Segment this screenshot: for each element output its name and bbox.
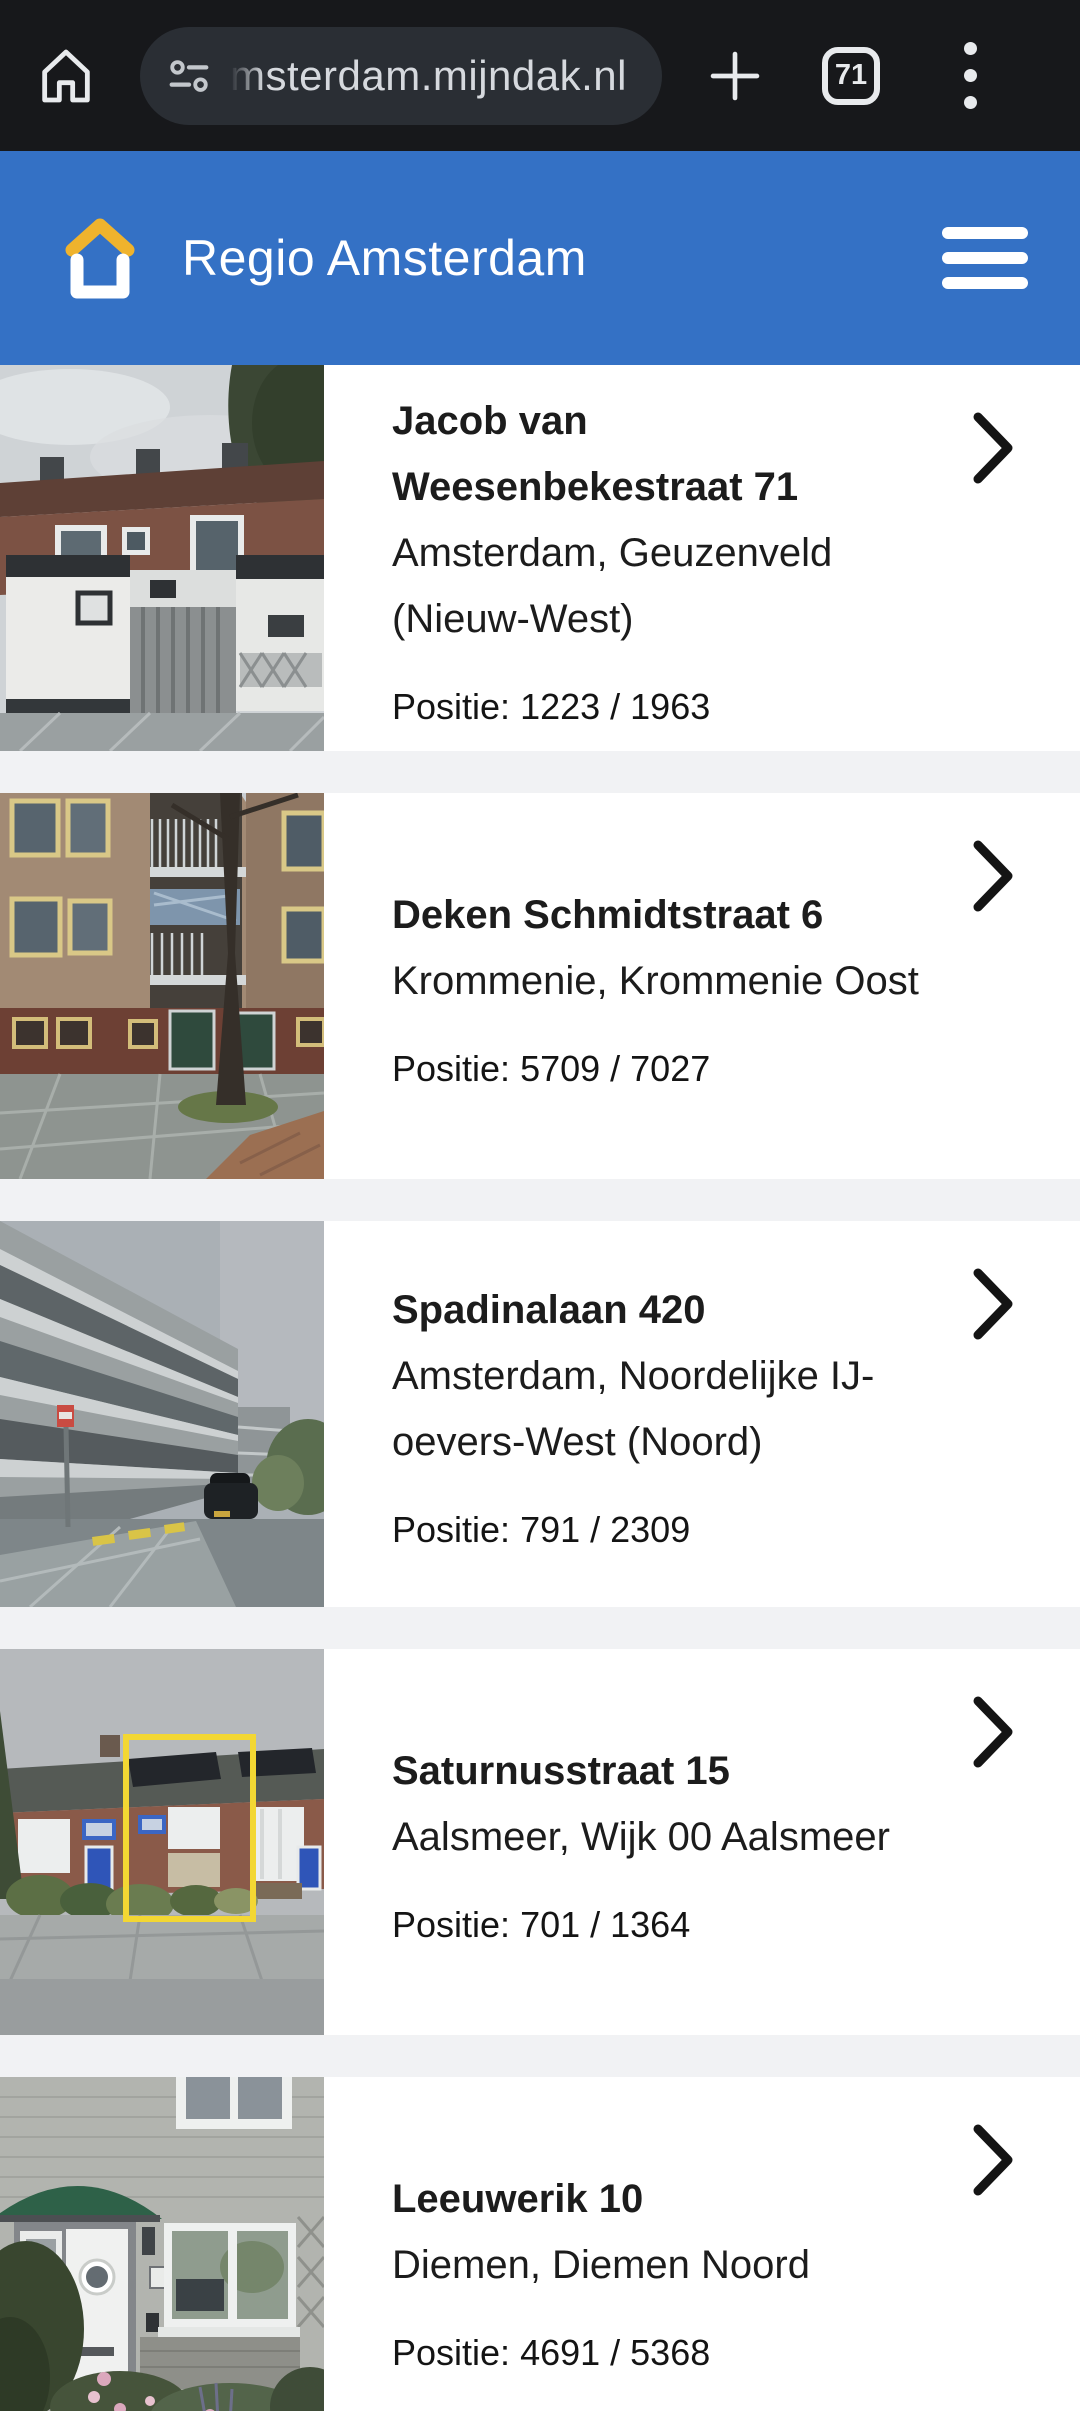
mobile-browser-screen: msterdam.mijndak.nl 71 Regio Amsterdam	[0, 0, 1080, 2411]
url-bar[interactable]: msterdam.mijndak.nl	[140, 27, 662, 125]
street-photo	[0, 365, 324, 751]
property-photo	[0, 2077, 324, 2411]
property-info: Spadinalaan 420 Amsterdam, Noordelijke I…	[324, 1221, 1080, 1607]
property-title: Saturnusstraat 15	[392, 1738, 930, 1804]
property-photo	[0, 793, 324, 1179]
property-title: Deken Schmidtstraat 6	[392, 882, 930, 948]
property-title: Leeuwerik 10	[392, 2166, 930, 2232]
tab-count: 71	[835, 59, 867, 92]
home-button[interactable]	[34, 44, 98, 108]
property-location: Amsterdam, Geuzenveld (Nieuw-West)	[392, 520, 930, 652]
property-position: Positie:5709 / 7027	[392, 1048, 930, 1090]
street-photo	[0, 1649, 324, 2035]
chevron-right-icon[interactable]	[968, 837, 1018, 918]
property-info: Jacob van Weesenbekestraat 71 Amsterdam,…	[324, 365, 1080, 751]
property-list-item[interactable]: Spadinalaan 420 Amsterdam, Noordelijke I…	[0, 1221, 1080, 1607]
property-position: Positie:1223 / 1963	[392, 686, 930, 728]
chevron-right-icon[interactable]	[968, 1693, 1018, 1774]
tune-icon	[166, 53, 212, 99]
property-location: Diemen, Diemen Noord	[392, 2232, 930, 2298]
property-position: Positie:4691 / 5368	[392, 2332, 930, 2374]
property-position: Positie:791 / 2309	[392, 1509, 930, 1551]
chevron-right-icon[interactable]	[968, 1265, 1018, 1346]
home-icon	[34, 44, 98, 108]
tab-switcher-icon: 71	[822, 47, 880, 105]
property-list-item[interactable]: Jacob van Weesenbekestraat 71 Amsterdam,…	[0, 365, 1080, 751]
page-title: Regio Amsterdam	[182, 229, 587, 287]
street-photo	[0, 2077, 324, 2411]
overflow-menu-icon	[964, 42, 977, 55]
chevron-right-icon[interactable]	[968, 2121, 1018, 2202]
app-header: Regio Amsterdam	[0, 151, 1080, 365]
hamburger-menu-icon	[942, 227, 1028, 239]
property-title: Jacob van Weesenbekestraat 71	[392, 388, 930, 520]
property-list-item[interactable]: Leeuwerik 10 Diemen, Diemen Noord Positi…	[0, 2077, 1080, 2411]
property-list: Jacob van Weesenbekestraat 71 Amsterdam,…	[0, 365, 1080, 2411]
property-photo	[0, 1221, 324, 1607]
street-photo	[0, 793, 324, 1179]
property-info: Saturnusstraat 15 Aalsmeer, Wijk 00 Aals…	[324, 1649, 1080, 2035]
property-position: Positie:701 / 1364	[392, 1904, 930, 1946]
property-location: Amsterdam, Noordelijke IJ-oevers-West (N…	[392, 1343, 930, 1475]
property-info: Deken Schmidtstraat 6 Krommenie, Krommen…	[324, 793, 1080, 1179]
hamburger-menu-button[interactable]	[942, 217, 1028, 299]
house-logo-icon	[50, 208, 150, 308]
url-text: msterdam.mijndak.nl	[230, 52, 627, 100]
new-tab-icon	[704, 45, 766, 107]
property-photo	[0, 1649, 324, 2035]
property-list-item[interactable]: Saturnusstraat 15 Aalsmeer, Wijk 00 Aals…	[0, 1649, 1080, 2035]
property-list-item[interactable]: Deken Schmidtstraat 6 Krommenie, Krommen…	[0, 793, 1080, 1179]
property-title: Spadinalaan 420	[392, 1277, 930, 1343]
property-location: Krommenie, Krommenie Oost	[392, 948, 930, 1014]
property-photo	[0, 365, 324, 751]
browser-toolbar: msterdam.mijndak.nl 71	[0, 0, 1080, 151]
street-photo	[0, 1221, 324, 1607]
chevron-right-icon[interactable]	[968, 409, 1018, 490]
property-location: Aalsmeer, Wijk 00 Aalsmeer	[392, 1804, 930, 1870]
browser-menu-button[interactable]	[942, 27, 998, 125]
new-tab-button[interactable]	[702, 27, 768, 125]
tab-switcher-button[interactable]: 71	[818, 27, 884, 125]
property-info: Leeuwerik 10 Diemen, Diemen Noord Positi…	[324, 2077, 1080, 2411]
